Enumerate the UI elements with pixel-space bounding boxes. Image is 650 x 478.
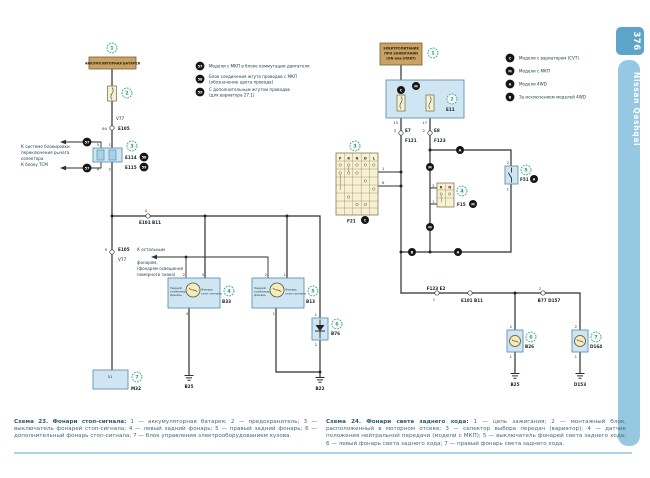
svg-text:58: 58 (142, 155, 147, 159)
wire-label: V77 (118, 257, 127, 262)
legend-text: Модели с МКП в блоке коммутации двигател… (209, 64, 310, 69)
col-label: N (448, 185, 451, 189)
pin-label: 3 (202, 272, 205, 277)
pin-label: 6 (382, 180, 385, 185)
arrow-note: (фонарям освещения (137, 266, 184, 271)
svg-text:A: A (509, 82, 512, 86)
svg-text:2: 2 (450, 97, 453, 103)
note-circle-58: 58 (140, 153, 149, 162)
bcm-box (93, 370, 128, 389)
scheme-23: АККУМУЛЯТОРНАЯ БАТАРЕЯ (21, 43, 342, 391)
connector-symbol-e105b (110, 250, 114, 254)
pin-label: 1 (507, 187, 510, 192)
svg-text:5: 5 (311, 289, 314, 295)
pin-label: 1 (273, 311, 276, 316)
ground-icon (511, 372, 520, 378)
callout-7: 7 (591, 332, 601, 342)
arrow-note: К остальным (137, 247, 165, 252)
ground-label: B22 (315, 386, 324, 391)
svg-text:57: 57 (85, 166, 90, 170)
connector-label: E7 (405, 128, 411, 133)
pin-label: 2 (575, 324, 578, 329)
pin-label: 2 (183, 272, 186, 277)
ground-icon (185, 374, 194, 380)
power-label: (ON или START) (386, 57, 416, 61)
side-note: К системе блокировки (21, 144, 70, 149)
pin-label: 2 (510, 324, 513, 329)
side-note: селектора (21, 156, 44, 161)
connector-label: M32 (131, 386, 141, 391)
callout-6: 6 (332, 319, 342, 329)
callout-3: 3 (127, 141, 137, 151)
pin-label: 1 (315, 312, 318, 317)
connector-label: B26 (525, 344, 534, 349)
arrow-other-lamps (151, 255, 157, 260)
junction-dot (319, 371, 322, 374)
wire-lamp-grounds (189, 308, 320, 376)
wire-switch-stubs (378, 172, 437, 204)
connector-label: E105 (118, 126, 130, 131)
callout-6: 6 (526, 332, 536, 342)
lamp-text: стоп-сигнала (285, 292, 306, 296)
svg-text:7: 7 (594, 335, 597, 341)
svg-text:M: M (414, 84, 418, 88)
lamp-text: стоп-сигнала (201, 292, 222, 296)
svg-text:58: 58 (198, 77, 203, 81)
pin-label: 1 (433, 297, 436, 302)
connector-symbol (435, 291, 439, 295)
connector-label: F15 (457, 202, 466, 207)
junction-dot (204, 215, 207, 218)
connector-symbol (468, 291, 472, 295)
callout-3: 3 (350, 141, 360, 151)
svg-text:3: 3 (130, 144, 133, 150)
svg-text:6: 6 (335, 322, 338, 328)
connector-symbol-e105 (110, 126, 114, 130)
connector-label: F21 (347, 219, 356, 224)
pin-label: 5 (97, 142, 100, 147)
side-note: К блоку ТСМ (21, 162, 48, 167)
svg-text:B: B (411, 250, 414, 254)
power-label: ЭЛЕКТРОПИТАНИЕ (383, 47, 419, 51)
junction-dot (185, 256, 188, 259)
scheme-24: ЭЛЕКТРОПИТАНИЕ ПРИ ЗАЖИГАНИИ (ON или STA… (336, 43, 602, 387)
bulb-icon (575, 336, 586, 347)
svg-text:C: C (400, 88, 403, 92)
connector-label: F51 (520, 177, 529, 182)
legend-circle-M: M (506, 67, 515, 76)
legend-text: За исключением моделей 4WD (519, 95, 586, 100)
col-label: N (356, 157, 359, 161)
bcm-pin: 51 (108, 374, 113, 379)
junction-dot (400, 251, 403, 254)
power-label: ПРИ ЗАЖИГАНИИ (384, 52, 418, 56)
svg-text:4: 4 (460, 189, 463, 195)
legend-text: (обозначение цвета провода) (209, 80, 274, 85)
pin-label: 1 (432, 199, 435, 204)
note-circle-59: 59 (140, 163, 149, 172)
pin-label: 1 (382, 166, 385, 171)
junction-dot (429, 149, 432, 152)
callout-1: 1 (428, 48, 438, 58)
callout-2: 2 (447, 94, 457, 104)
connector-label: B77 D157 (538, 298, 561, 303)
col-label: R (440, 185, 443, 189)
pin-label: 2 (539, 286, 542, 291)
lamp-text: фонарь (254, 293, 266, 297)
legend-circle-B: B (506, 93, 515, 102)
connector-label: B76 (331, 331, 340, 336)
pin-label: 2 (265, 272, 268, 277)
wire-condition-M: M (426, 163, 434, 171)
ground-label: D153 (574, 382, 586, 387)
sidebar: 376 Nissan Qashqai (616, 27, 644, 446)
bulb-icon (270, 283, 284, 297)
bulb-icon (186, 283, 200, 297)
arrow-note: фонарям, (137, 260, 158, 265)
connector-label: B33 (222, 299, 231, 304)
pin-label: 4 (97, 167, 100, 172)
legend-text: Блок соединения жгута проводов с МКП (209, 74, 297, 79)
callout-4: 4 (224, 286, 234, 296)
switch-contact-left (97, 150, 104, 160)
wire-label: V77 (116, 116, 125, 121)
caption-23-lead: Схема 23. Фонари стоп-сигнала: (14, 419, 126, 425)
wire-condition-M: M (426, 223, 434, 231)
junction-dot (514, 292, 517, 295)
svg-text:57: 57 (85, 140, 90, 144)
part-condition-M: M (469, 200, 477, 208)
legend-circle-59: 59 (196, 88, 205, 97)
wire-condition-M: M (412, 82, 420, 90)
pin-label: 3 (394, 128, 397, 133)
legend-text: Модели с вариатором (CVT) (519, 56, 579, 61)
junction-dot (111, 215, 114, 218)
pin-label: 1 (510, 354, 513, 359)
page-number: 376 (631, 31, 641, 50)
wire-condition-A: A (456, 146, 464, 154)
svg-text:B: B (509, 95, 512, 99)
pin-label: 60 (102, 126, 107, 131)
wire-4wd-branch (401, 150, 511, 252)
svg-text:1: 1 (110, 46, 113, 52)
pin-label: 17 (422, 120, 427, 125)
note-circle-57: 57 (83, 138, 92, 147)
svg-text:6: 6 (529, 335, 532, 341)
legend-text: (для вариатора 27.1) (209, 93, 255, 98)
wiring-diagram-canvas: АККУМУЛЯТОРНАЯ БАТАРЕЯ (0, 0, 650, 478)
svg-text:M: M (508, 69, 512, 73)
connector-symbol (428, 131, 432, 135)
svg-text:M: M (428, 165, 432, 169)
svg-text:59: 59 (142, 165, 147, 169)
pin-label: 2 (315, 342, 318, 347)
pin-label: 15 (393, 120, 398, 125)
pin-label: 2 (109, 167, 112, 172)
connector-label: B13 (306, 299, 315, 304)
connector-label: E114 (125, 155, 137, 160)
connector-symbol (541, 291, 545, 295)
book-title: Nissan Qashqai (632, 72, 641, 146)
legend-circle-58: 58 (196, 75, 205, 84)
connector-label: F121 (405, 138, 417, 143)
arrow-left-bottom (60, 166, 66, 171)
caption-scheme-23: Схема 23. Фонари стоп-сигнала: 1 — аккум… (14, 419, 317, 441)
svg-text:M: M (471, 202, 475, 206)
connector-label: F123 E2 (427, 286, 446, 291)
legend-circle-57: 57 (196, 62, 205, 71)
callout-4: 4 (457, 186, 467, 196)
svg-text:A: A (459, 148, 462, 152)
callout-2: 2 (122, 88, 132, 98)
connector-label: E101 B11 (461, 298, 483, 303)
connector-label: F123 (434, 138, 446, 143)
callout-5: 5 (521, 165, 531, 175)
svg-text:A: A (533, 177, 536, 181)
pin-label: 9 (105, 247, 108, 252)
connector-label: E8 (434, 128, 440, 133)
part-condition-C: C (361, 216, 369, 224)
pin-label: 2 (507, 160, 510, 165)
svg-text:57: 57 (198, 64, 203, 68)
switch-contact-right (109, 150, 116, 160)
battery-label: АККУМУЛЯТОРНАЯ БАТАРЕЯ (85, 62, 141, 66)
callout-5: 5 (308, 286, 318, 296)
pin-label: 2 (432, 183, 435, 188)
caption-24-lead: Схема 24. Фонари света заднего хода: (326, 419, 469, 425)
note-circle-57: 57 (83, 164, 92, 173)
pin-label: 1 (284, 272, 287, 277)
connector-label: E115 (125, 165, 137, 170)
legend-text: Модели 4WD (519, 82, 547, 87)
ground-icon (316, 376, 325, 382)
svg-text:3: 3 (353, 144, 356, 150)
connector-label: E101 B11 (139, 220, 161, 225)
part-condition-A: A (530, 175, 538, 183)
caption-scheme-24: Схема 24. Фонари света заднего хода: 1 —… (326, 419, 626, 448)
wire-condition-B: B (408, 248, 416, 256)
wire-condition-A: A (454, 248, 462, 256)
bulb-icon (510, 336, 521, 347)
callout-1: 1 (107, 43, 117, 53)
junction-dot (286, 215, 289, 218)
svg-text:M: M (428, 225, 432, 229)
side-note: переключения рычага (21, 150, 70, 155)
ground-icon (576, 372, 585, 378)
svg-text:2: 2 (125, 91, 128, 97)
junction-dot (429, 251, 432, 254)
legend-circle-C: C (506, 54, 515, 63)
connector-label: E105 (118, 247, 130, 252)
legend-text: С дополнительным жгутом проводов (209, 87, 290, 92)
ground-label: B25 (510, 382, 519, 387)
connector-label: D164 (590, 344, 602, 349)
connector-label: E11 (446, 107, 455, 112)
junction-dot (400, 171, 403, 174)
pin-label: 4 (145, 208, 148, 213)
connector-symbol-e101 (146, 214, 150, 218)
svg-text:C: C (509, 56, 512, 60)
svg-text:5: 5 (524, 168, 527, 174)
legend-circle-A: A (506, 80, 515, 89)
pin-label: 4 (186, 311, 189, 316)
legend-text: Модели с МКП (519, 69, 550, 74)
svg-text:4: 4 (227, 289, 230, 295)
connector-symbol (399, 131, 403, 135)
ground-label: B25 (184, 384, 193, 389)
svg-text:A: A (457, 250, 460, 254)
bottom-divider (14, 452, 632, 454)
wire-condition-C: C (397, 86, 405, 94)
svg-text:1: 1 (431, 51, 434, 57)
junction-dot (400, 185, 403, 188)
svg-text:59: 59 (198, 90, 203, 94)
wire-bottom (401, 293, 580, 372)
svg-text:7: 7 (135, 375, 138, 381)
pin-label: 2 (423, 128, 426, 133)
callout-7: 7 (132, 372, 142, 382)
lamp-text: фонарь (170, 293, 182, 297)
arrow-note: номерного знака) (137, 272, 176, 277)
col-label: D (364, 157, 367, 161)
pin-label: 1 (109, 142, 112, 147)
manual-page: АККУМУЛЯТОРНАЯ БАТАРЕЯ (0, 0, 650, 478)
pin-label: 1 (575, 354, 578, 359)
svg-text:C: C (364, 218, 367, 222)
